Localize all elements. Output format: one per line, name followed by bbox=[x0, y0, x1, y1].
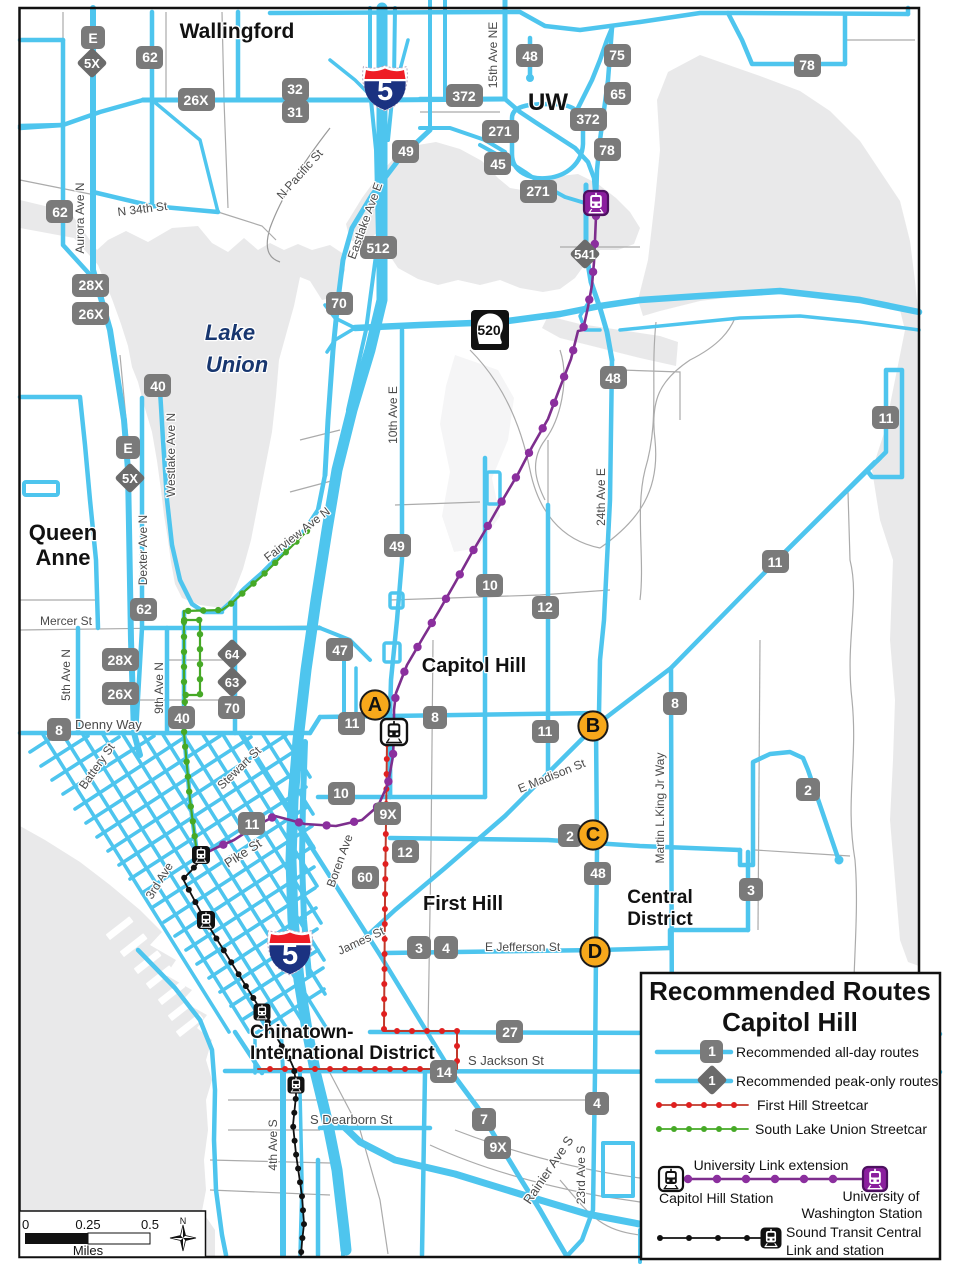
svg-text:70: 70 bbox=[331, 295, 347, 311]
svg-text:271: 271 bbox=[526, 183, 550, 199]
svg-text:Central: Central bbox=[627, 887, 692, 908]
svg-text:10: 10 bbox=[333, 785, 349, 801]
svg-text:5X: 5X bbox=[84, 56, 100, 71]
svg-text:N: N bbox=[180, 1216, 187, 1226]
svg-text:Denny Way: Denny Way bbox=[75, 717, 142, 732]
svg-text:48: 48 bbox=[522, 48, 538, 64]
svg-text:40: 40 bbox=[174, 710, 190, 726]
svg-text:31: 31 bbox=[287, 104, 303, 120]
svg-text:49: 49 bbox=[389, 538, 405, 554]
svg-text:0.5: 0.5 bbox=[141, 1217, 159, 1232]
svg-text:62: 62 bbox=[136, 601, 152, 617]
svg-text:2: 2 bbox=[804, 782, 812, 798]
svg-text:S Jackson St: S Jackson St bbox=[468, 1053, 544, 1068]
svg-text:Recommended all-day routes: Recommended all-day routes bbox=[736, 1044, 919, 1060]
svg-text:24th Ave E: 24th Ave E bbox=[594, 468, 608, 526]
svg-text:12: 12 bbox=[397, 844, 413, 860]
svg-text:28X: 28X bbox=[108, 652, 134, 668]
svg-text:Capitol Hill: Capitol Hill bbox=[722, 1007, 858, 1037]
svg-text:11: 11 bbox=[245, 816, 260, 832]
svg-text:27: 27 bbox=[502, 1024, 518, 1040]
svg-text:75: 75 bbox=[609, 47, 625, 63]
svg-text:B: B bbox=[586, 715, 600, 737]
svg-text:15th Ave NE: 15th Ave NE bbox=[486, 22, 500, 89]
svg-text:Dexter Ave N: Dexter Ave N bbox=[136, 515, 150, 585]
svg-text:Union: Union bbox=[206, 352, 268, 377]
svg-text:Chinatown-: Chinatown- bbox=[250, 1022, 353, 1043]
svg-text:541: 541 bbox=[574, 247, 596, 262]
svg-text:372: 372 bbox=[452, 88, 476, 104]
svg-text:University Link extension: University Link extension bbox=[694, 1157, 849, 1173]
svg-text:Capitol Hill: Capitol Hill bbox=[422, 655, 526, 677]
svg-text:372: 372 bbox=[576, 111, 600, 127]
svg-text:26X: 26X bbox=[184, 92, 210, 108]
svg-text:48: 48 bbox=[590, 865, 606, 881]
svg-text:4: 4 bbox=[442, 940, 450, 956]
svg-text:26X: 26X bbox=[108, 686, 134, 702]
svg-text:62: 62 bbox=[142, 49, 158, 65]
svg-text:60: 60 bbox=[357, 869, 373, 885]
svg-text:1: 1 bbox=[708, 1073, 715, 1088]
svg-text:10th Ave E: 10th Ave E bbox=[386, 386, 400, 444]
svg-text:Westlake Ave N: Westlake Ave N bbox=[164, 413, 178, 497]
svg-text:14: 14 bbox=[436, 1064, 452, 1080]
svg-text:78: 78 bbox=[599, 142, 615, 158]
svg-text:UW: UW bbox=[528, 89, 568, 116]
svg-text:5: 5 bbox=[377, 75, 393, 107]
svg-text:Recommended peak-only routes: Recommended peak-only routes bbox=[736, 1073, 938, 1089]
svg-text:E: E bbox=[88, 30, 97, 46]
svg-text:Anne: Anne bbox=[36, 545, 91, 570]
svg-text:First Hill: First Hill bbox=[423, 893, 503, 915]
svg-text:5th Ave N: 5th Ave N bbox=[59, 649, 73, 701]
svg-text:University of: University of bbox=[842, 1188, 919, 1204]
svg-text:District: District bbox=[627, 909, 693, 930]
svg-text:49: 49 bbox=[398, 143, 414, 159]
svg-text:1: 1 bbox=[708, 1043, 716, 1059]
svg-text:8: 8 bbox=[671, 695, 679, 711]
svg-text:D: D bbox=[588, 941, 602, 963]
svg-text:9X: 9X bbox=[489, 1139, 507, 1155]
svg-text:26X: 26X bbox=[79, 306, 105, 322]
svg-text:Wallingford: Wallingford bbox=[180, 20, 295, 43]
svg-text:South Lake Union Streetcar: South Lake Union Streetcar bbox=[755, 1121, 927, 1137]
svg-text:23rd Ave S: 23rd Ave S bbox=[574, 1146, 588, 1205]
svg-text:2: 2 bbox=[566, 828, 574, 844]
svg-text:12: 12 bbox=[537, 599, 553, 615]
svg-text:11: 11 bbox=[538, 723, 553, 739]
svg-text:9th Ave N: 9th Ave N bbox=[152, 662, 166, 714]
svg-text:Queen: Queen bbox=[29, 520, 97, 545]
svg-text:4: 4 bbox=[593, 1095, 601, 1111]
svg-text:S Dearborn St: S Dearborn St bbox=[310, 1112, 393, 1127]
svg-text:Martin L.King Jr Way: Martin L.King Jr Way bbox=[653, 753, 667, 864]
svg-text:0: 0 bbox=[22, 1217, 29, 1232]
svg-text:10: 10 bbox=[482, 577, 498, 593]
svg-text:8: 8 bbox=[431, 709, 439, 725]
svg-text:8: 8 bbox=[55, 722, 63, 738]
svg-text:32: 32 bbox=[287, 81, 303, 97]
svg-text:First Hill Streetcar: First Hill Streetcar bbox=[757, 1097, 869, 1113]
svg-text:A: A bbox=[368, 694, 382, 716]
svg-text:7: 7 bbox=[480, 1111, 488, 1127]
svg-text:International District: International District bbox=[250, 1043, 435, 1064]
svg-text:Lake: Lake bbox=[205, 320, 255, 345]
svg-text:45: 45 bbox=[490, 156, 506, 172]
svg-text:Washington Station: Washington Station bbox=[802, 1205, 923, 1221]
svg-text:4th Ave S: 4th Ave S bbox=[266, 1119, 280, 1170]
svg-text:Capitol Hill Station: Capitol Hill Station bbox=[659, 1190, 773, 1206]
svg-text:Recommended Routes: Recommended Routes bbox=[649, 976, 931, 1006]
svg-text:5X: 5X bbox=[122, 471, 138, 486]
svg-text:70: 70 bbox=[224, 700, 240, 716]
svg-text:65: 65 bbox=[610, 86, 626, 102]
svg-text:3: 3 bbox=[415, 940, 423, 956]
svg-text:Mercer St: Mercer St bbox=[40, 614, 93, 628]
svg-text:E: E bbox=[123, 440, 132, 456]
svg-text:78: 78 bbox=[799, 57, 815, 73]
svg-text:Link and station: Link and station bbox=[786, 1242, 884, 1258]
svg-text:11: 11 bbox=[879, 410, 894, 426]
svg-text:28X: 28X bbox=[79, 277, 105, 293]
svg-text:11: 11 bbox=[345, 715, 360, 731]
svg-text:64: 64 bbox=[225, 647, 240, 662]
svg-text:5: 5 bbox=[282, 939, 298, 971]
svg-text:47: 47 bbox=[332, 642, 348, 658]
svg-text:63: 63 bbox=[225, 675, 239, 690]
svg-text:3: 3 bbox=[747, 882, 755, 898]
svg-text:Aurora Ave N: Aurora Ave N bbox=[73, 182, 87, 253]
svg-text:Sound Transit Central: Sound Transit Central bbox=[786, 1224, 921, 1240]
svg-text:9X: 9X bbox=[379, 806, 397, 822]
svg-text:62: 62 bbox=[52, 204, 68, 220]
svg-text:48: 48 bbox=[605, 370, 621, 386]
svg-text:271: 271 bbox=[488, 123, 512, 139]
svg-text:E Jefferson St: E Jefferson St bbox=[485, 940, 561, 954]
svg-text:40: 40 bbox=[150, 378, 166, 394]
svg-text:11: 11 bbox=[768, 554, 783, 570]
svg-text:520: 520 bbox=[477, 322, 501, 338]
svg-text:Miles: Miles bbox=[73, 1243, 104, 1258]
svg-text:C: C bbox=[586, 824, 600, 846]
svg-text:512: 512 bbox=[366, 240, 390, 256]
svg-text:0.25: 0.25 bbox=[75, 1217, 100, 1232]
